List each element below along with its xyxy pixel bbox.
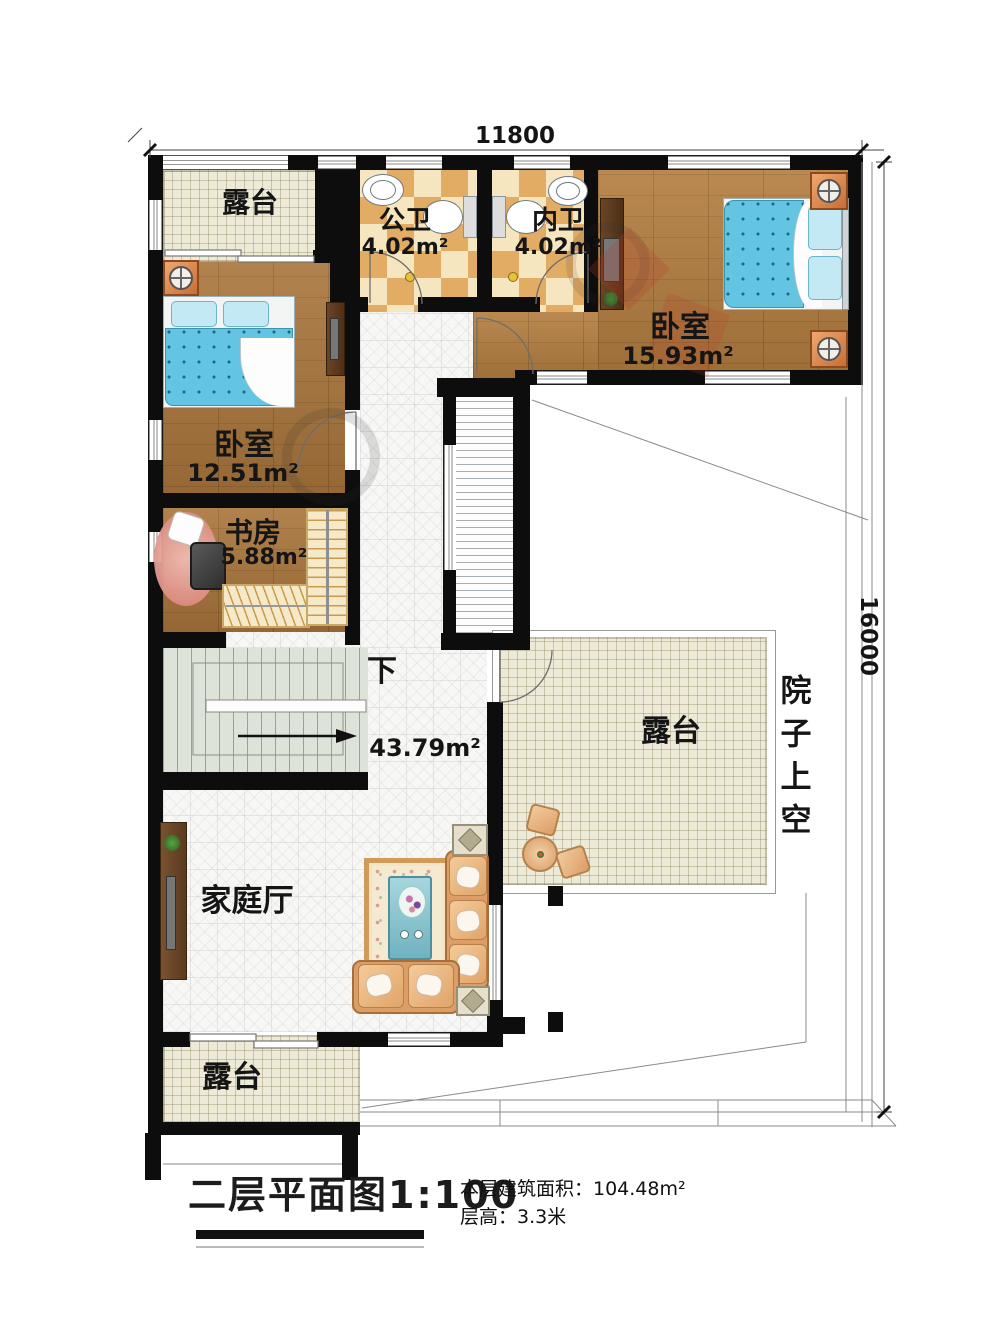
bedroom-left-area: 12.51m² bbox=[163, 461, 323, 486]
hall-area: 43.79m² bbox=[345, 736, 505, 761]
bath-public-area: 4.02m² bbox=[350, 236, 460, 259]
title-underline-bar bbox=[196, 1230, 424, 1239]
hall-label: 家庭厅 bbox=[157, 885, 337, 918]
floor-plan: 露台 公卫 4.02m² 内卫 4.02m² 卧室 15.93m² 卧室 12.… bbox=[0, 0, 1000, 1333]
bedroom-right-label: 卧室 bbox=[620, 312, 740, 344]
title-underline-thin bbox=[196, 1246, 424, 1248]
bath-inner-area: 4.02m² bbox=[503, 236, 613, 259]
bedroom-left-label: 卧室 bbox=[184, 430, 304, 462]
building-area-text: 本层建筑面积：104.48m² bbox=[460, 1180, 780, 1200]
courtyard-void-label: 院子上空 bbox=[776, 660, 809, 860]
bedroom-right-area: 15.93m² bbox=[598, 344, 758, 369]
bath-inner-label: 内卫 bbox=[503, 208, 613, 235]
terrace-bottom-label: 露台 bbox=[172, 1062, 292, 1094]
terrace-top-label: 露台 bbox=[190, 188, 310, 217]
study-label: 书房 bbox=[193, 518, 313, 547]
dimension-top: 11800 bbox=[455, 124, 575, 148]
bath-public-label: 公卫 bbox=[350, 208, 460, 235]
terrace-mid-label: 露台 bbox=[611, 716, 731, 748]
study-area: 5.88m² bbox=[184, 546, 344, 569]
stairs-down-label: 下 bbox=[362, 656, 402, 688]
plan-linework bbox=[0, 0, 1000, 1333]
dimension-right: 16000 bbox=[856, 596, 880, 676]
floor-height-text: 层高：3.3米 bbox=[460, 1208, 780, 1228]
